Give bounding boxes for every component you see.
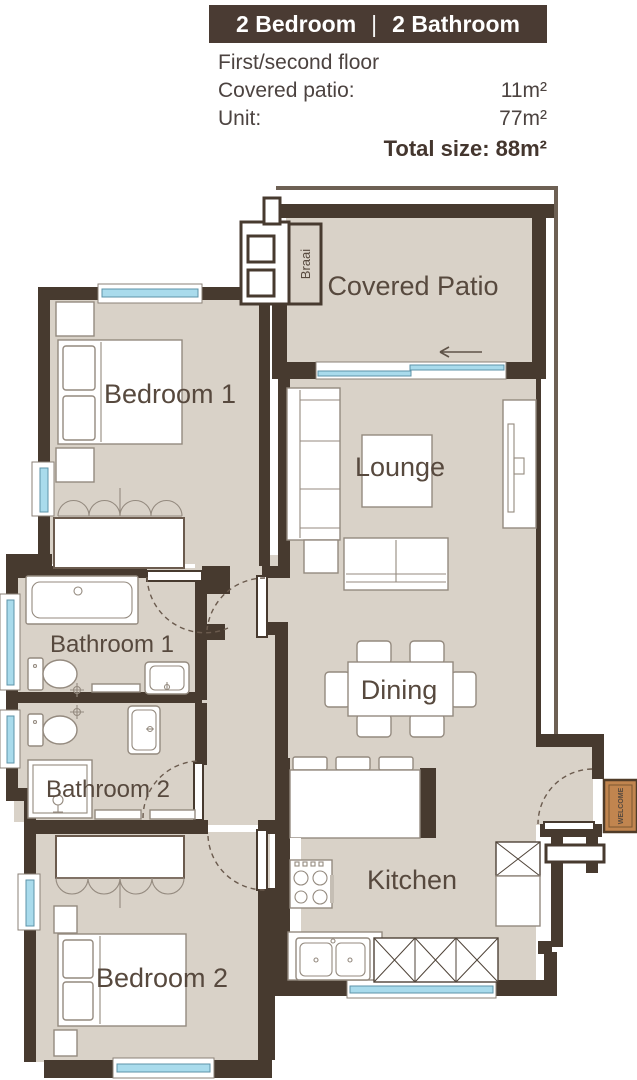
basin-icon xyxy=(128,706,160,754)
toilet-icon xyxy=(28,658,77,690)
sink-icon xyxy=(296,938,370,980)
nightstand-icon xyxy=(54,1030,77,1056)
banner-bedrooms: 2 Bedroom xyxy=(236,11,356,38)
nightstand-icon xyxy=(56,448,94,482)
unit-size-row: Unit: 77m² xyxy=(218,105,547,133)
entrance-niche xyxy=(546,845,604,862)
chair-icon xyxy=(325,672,350,707)
patio-sliding-door xyxy=(316,362,506,379)
bathroom2-window xyxy=(0,710,20,768)
basin-icon xyxy=(145,662,189,694)
shelf-icon xyxy=(95,810,141,819)
kitchen-window xyxy=(347,980,496,998)
stool-icon xyxy=(379,757,413,770)
welcome-mat: WELCOME xyxy=(604,780,637,832)
tv-unit-icon xyxy=(503,400,536,528)
plan-header: 2 Bedroom | 2 Bathroom First/second floo… xyxy=(209,5,547,163)
towel-rail-icon xyxy=(92,684,140,692)
bedroom2-window xyxy=(113,1058,214,1078)
bathroom2-label: Bathroom 2 xyxy=(46,776,170,803)
chair-icon xyxy=(410,714,444,737)
side-table-icon xyxy=(304,540,338,573)
patio-size-value: 11m² xyxy=(501,77,547,105)
banner-bathrooms: 2 Bathroom xyxy=(392,11,520,38)
floor-plan-page: 2 Bedroom | 2 Bathroom First/second floo… xyxy=(0,0,637,1080)
title-banner: 2 Bedroom | 2 Bathroom xyxy=(209,5,547,43)
cabinet-row-icon xyxy=(374,938,498,982)
toilet-icon xyxy=(28,714,77,746)
lounge-label: Lounge xyxy=(355,452,445,482)
bathroom1-window xyxy=(0,594,20,690)
chair-icon xyxy=(357,714,391,737)
bedroom1-window xyxy=(98,284,202,303)
chair-icon xyxy=(410,641,444,664)
bathtub-icon xyxy=(26,576,138,624)
dining-label: Dining xyxy=(361,675,438,705)
cupboard-icon xyxy=(496,842,540,926)
bedroom2-furniture xyxy=(54,836,186,1056)
bedroom2-label: Bedroom 2 xyxy=(96,963,228,993)
patio-size-row: Covered patio: 11m² xyxy=(218,77,547,105)
nightstand-icon xyxy=(56,302,94,336)
patio-size-label: Covered patio: xyxy=(218,77,355,105)
unit-size-label: Unit: xyxy=(218,105,261,133)
total-size: Total size: 88m² xyxy=(218,135,547,163)
bedroom2-side-window xyxy=(18,874,40,930)
bedroom1-side-window xyxy=(32,462,54,516)
kitchen-label: Kitchen xyxy=(367,865,457,895)
shelf-icon xyxy=(150,810,195,819)
bedroom1-label: Bedroom 1 xyxy=(104,379,236,409)
bathroom1-label: Bathroom 1 xyxy=(50,631,174,658)
stove-icon xyxy=(290,860,334,908)
chair-icon xyxy=(357,641,391,664)
unit-size-value: 77m² xyxy=(499,105,547,133)
sofa-icon xyxy=(287,388,340,540)
counter xyxy=(290,770,420,838)
banner-separator: | xyxy=(371,11,377,38)
size-info: First/second floor Covered patio: 11m² U… xyxy=(218,49,547,163)
covered-patio-label: Covered Patio xyxy=(327,271,498,301)
sofa-icon xyxy=(344,538,448,590)
floor-line: First/second floor xyxy=(218,49,547,77)
welcome-mat-label: WELCOME xyxy=(618,787,625,824)
bedroom1-furniture xyxy=(54,302,184,568)
nightstand-icon xyxy=(54,906,77,933)
stool-icon xyxy=(293,757,327,770)
chair-icon xyxy=(451,672,476,707)
braai-label: Braai xyxy=(298,249,313,279)
stool-icon xyxy=(336,757,370,770)
